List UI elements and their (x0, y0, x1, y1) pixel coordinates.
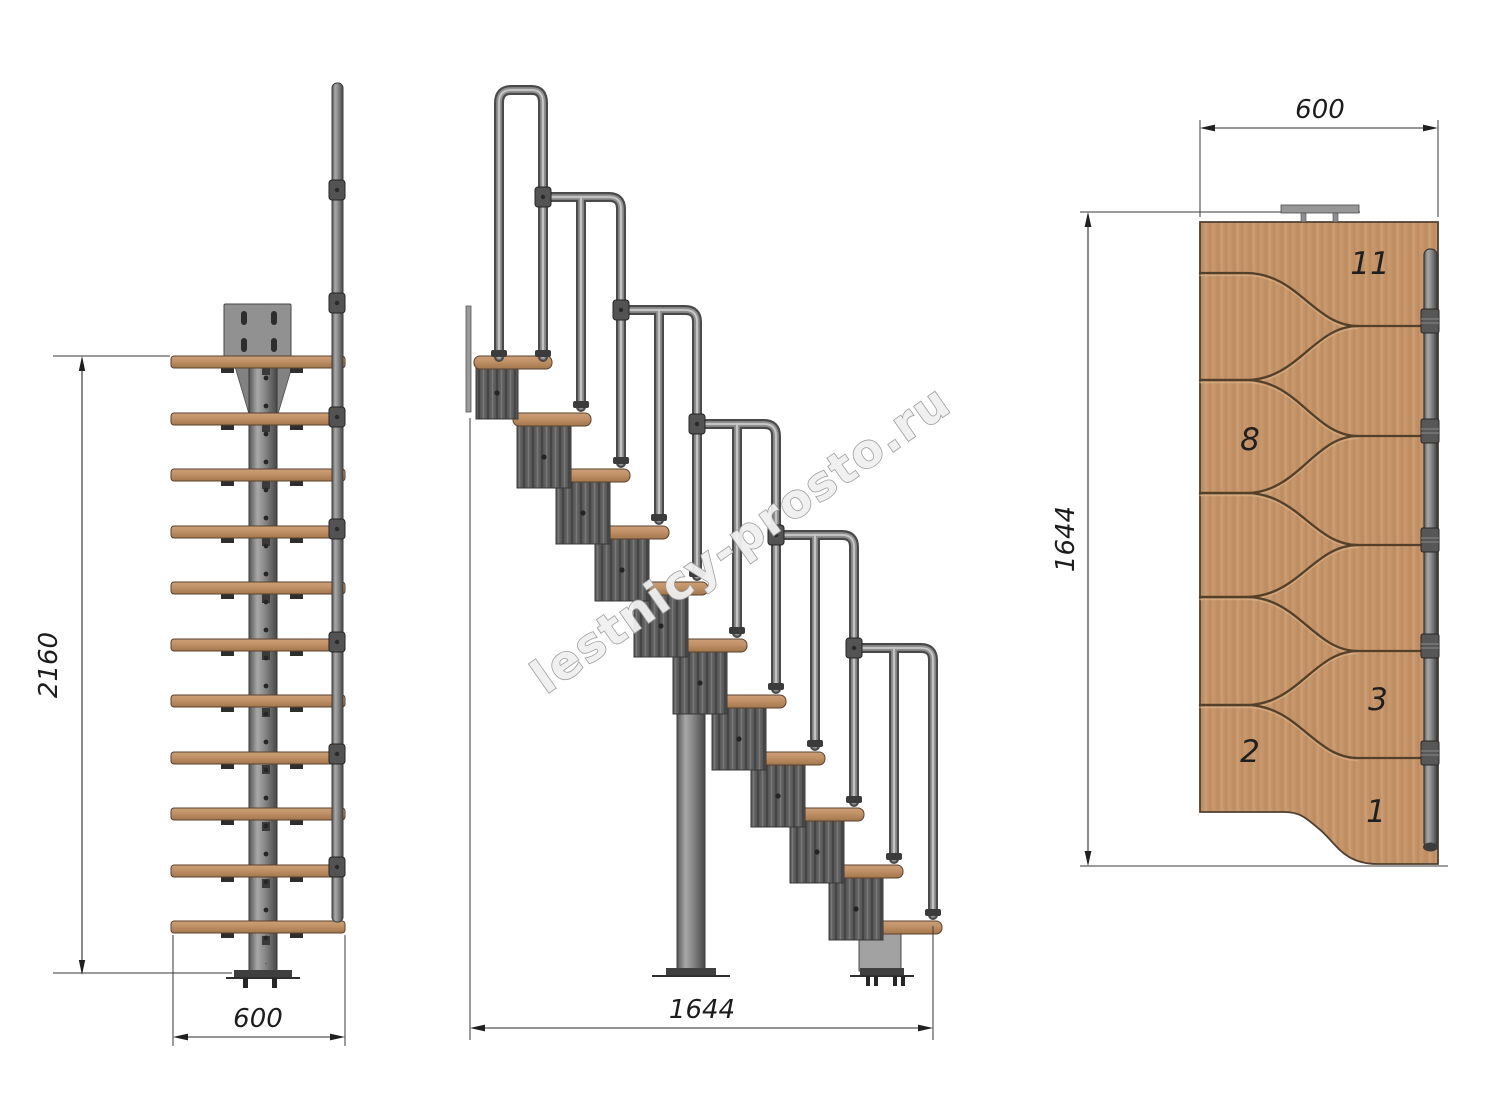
rail-clamp (1421, 309, 1439, 333)
step-number-11: 11 (1350, 246, 1389, 282)
rail-clamp (329, 407, 345, 427)
front-width-dimension: 600 (233, 1004, 283, 1034)
rail-clamp (329, 632, 345, 652)
rail-clamp (1421, 634, 1439, 658)
rail-foot (729, 627, 745, 634)
rail-end-cap (1423, 843, 1438, 852)
rail-foot (491, 350, 507, 357)
rail-clamp (329, 519, 345, 539)
step-number-8: 8 (1240, 422, 1260, 458)
front-center-column (244, 360, 282, 971)
plan-width-dimension: 600 (1295, 95, 1345, 125)
rail-foot (535, 350, 551, 357)
staircase-drawing-canvas: 2160 (0, 0, 1500, 1114)
plan-view: 600 1644 (1051, 95, 1448, 866)
front-handrail-post (332, 83, 343, 922)
rail-foot (768, 683, 784, 690)
rail-foot (807, 740, 823, 747)
front-wall-bracket (224, 304, 291, 360)
rail-clamp (613, 300, 629, 320)
side-step (474, 356, 552, 419)
rail-foot (846, 796, 862, 803)
rail-clamp (1421, 741, 1439, 765)
side-length-dimension: 1644 (669, 995, 735, 1025)
step-number-3: 3 (1368, 682, 1388, 718)
plan-length-dimension: 1644 (1051, 506, 1081, 572)
side-wall-plate (466, 306, 471, 412)
plan-wall-bracket (1281, 205, 1359, 222)
rail-clamp (329, 180, 345, 200)
step-number-2: 2 (1240, 734, 1260, 770)
rail-clamp (1421, 528, 1439, 552)
rail-clamp (1421, 419, 1439, 443)
rail-foot (925, 909, 941, 916)
rail-clamp (689, 414, 705, 434)
front-view: 2160 (34, 83, 345, 1046)
step-number-1: 1 (1366, 794, 1386, 830)
plan-handrail (1421, 249, 1439, 852)
staircase-drawing: 2160 (0, 0, 1500, 1114)
rail-clamp (329, 857, 345, 877)
plan-tread-surface (1200, 222, 1438, 864)
front-base-plate (226, 970, 300, 988)
front-height-dimension: 2160 (34, 632, 64, 698)
rail-clamp (846, 638, 862, 658)
rail-clamp (535, 187, 551, 207)
rail-clamp (329, 293, 345, 313)
rail-foot (573, 401, 589, 408)
rail-foot (613, 457, 629, 464)
rail-foot (886, 853, 902, 860)
rail-foot (651, 514, 667, 521)
rail-clamp (329, 744, 345, 764)
